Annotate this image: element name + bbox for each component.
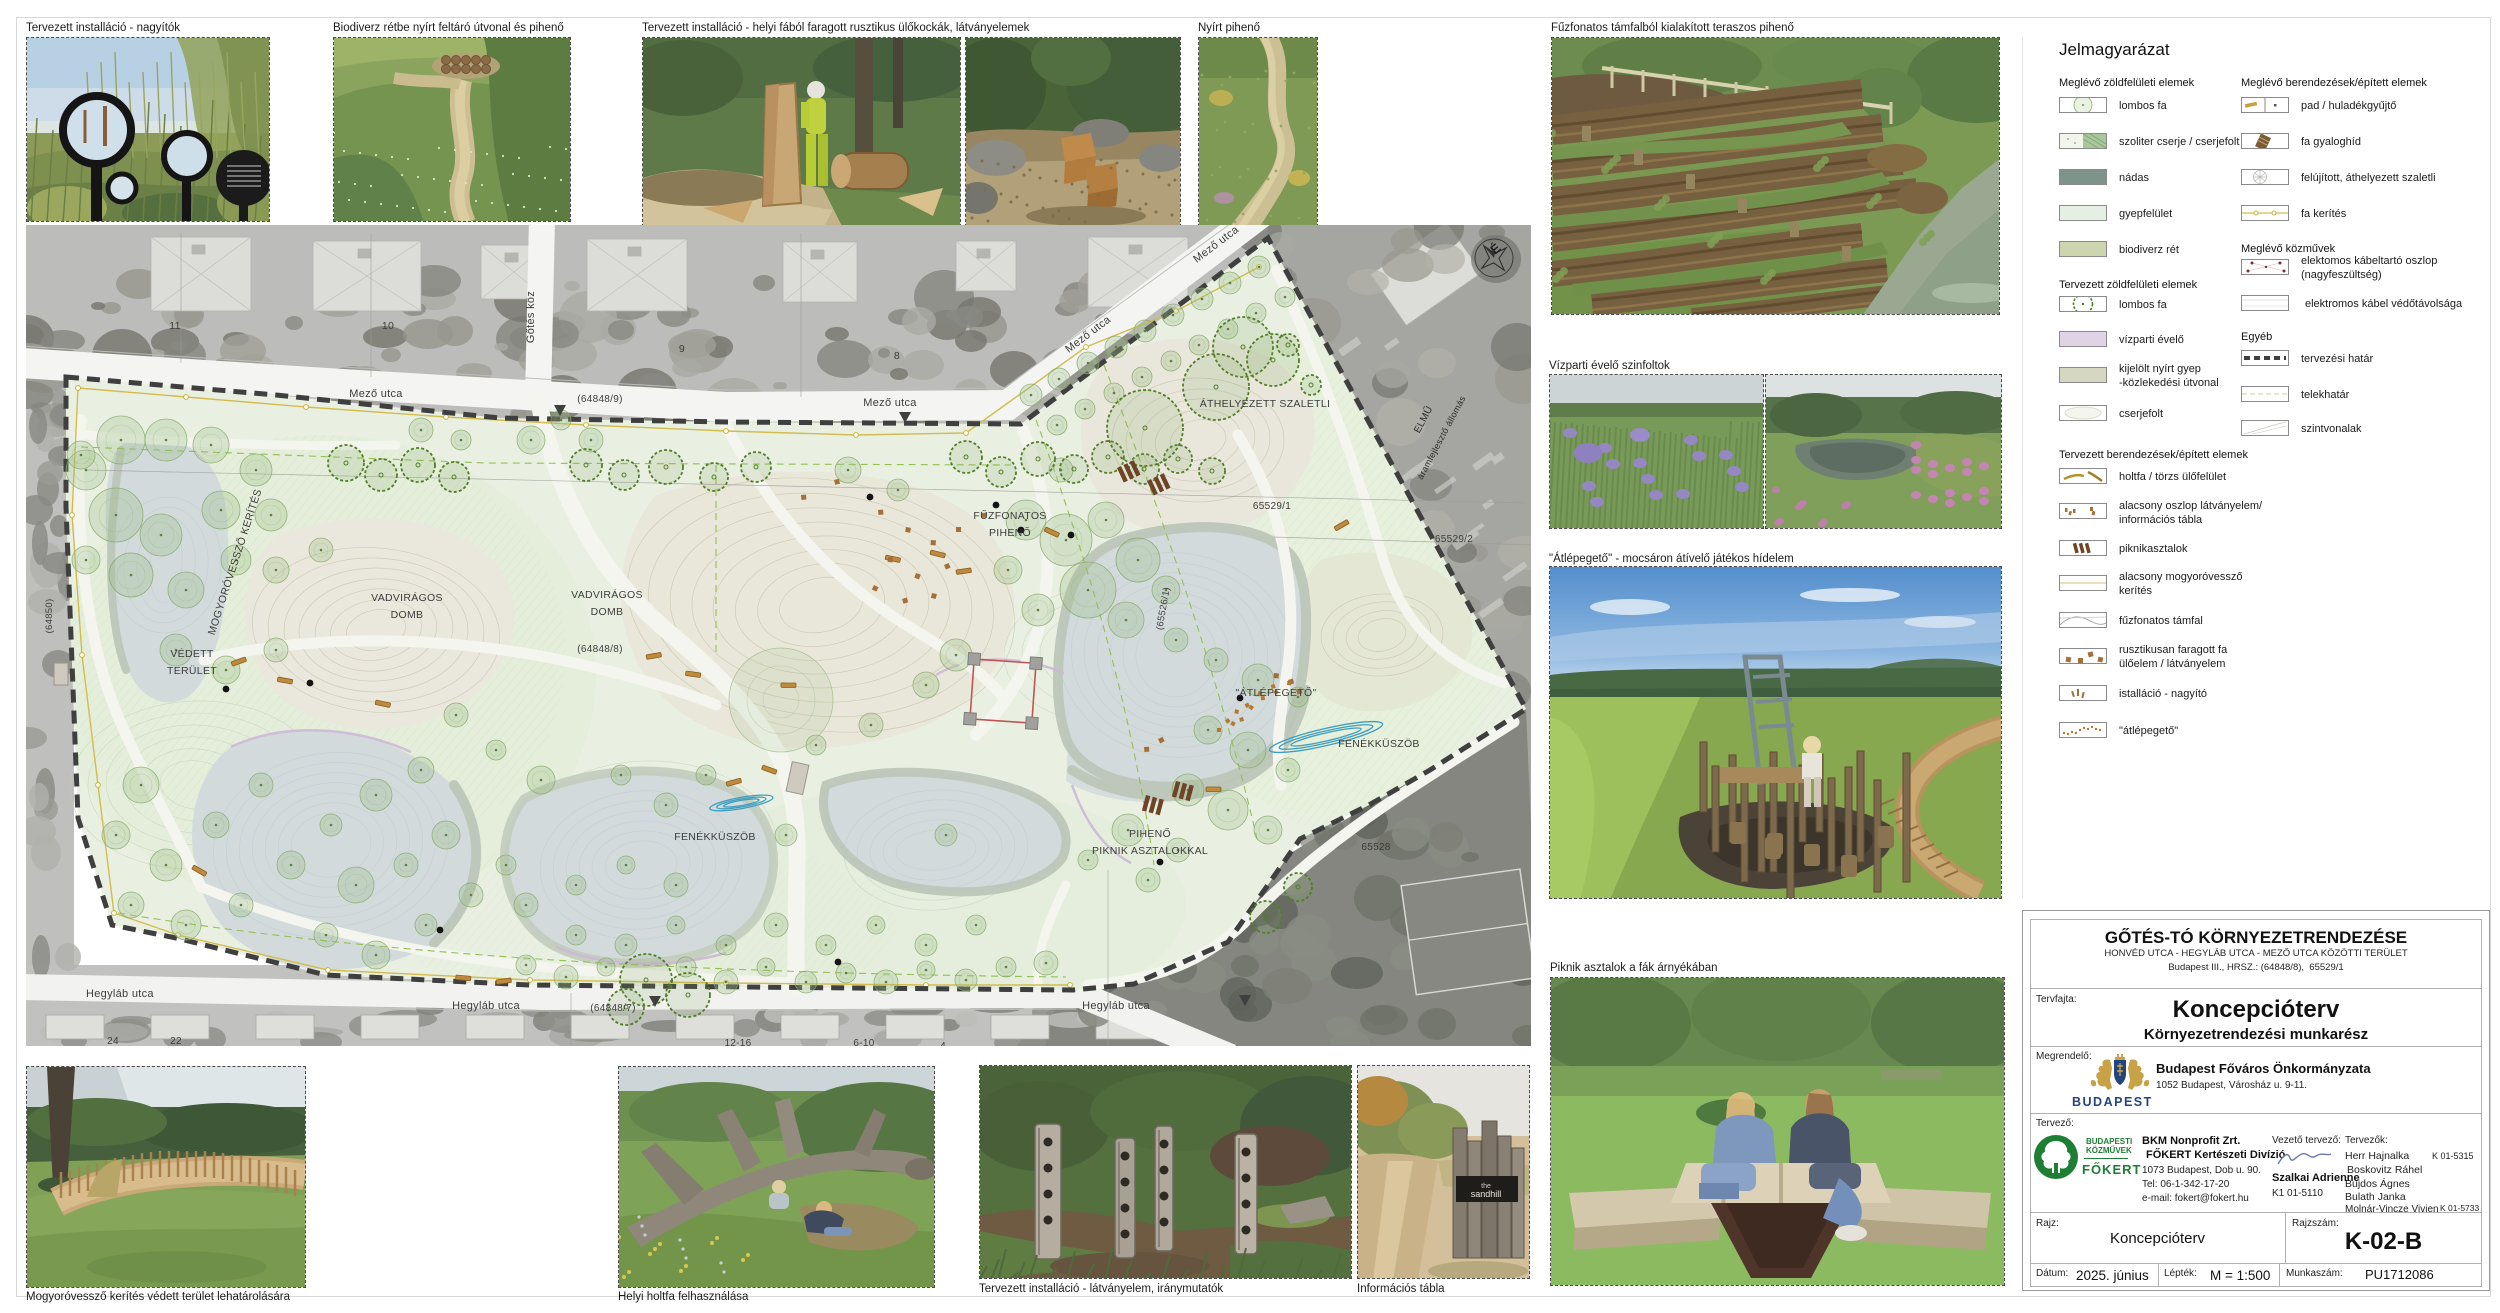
svg-text:Hegyláb utca: Hegyláb utca [452, 1000, 520, 1012]
svg-text:11: 11 [169, 320, 181, 332]
svg-text:(64848/8): (64848/8) [577, 644, 623, 655]
svg-text:"ÁTLÉPEGETŐ": "ÁTLÉPEGETŐ" [1235, 685, 1316, 699]
svg-text:8: 8 [894, 350, 900, 362]
svg-text:6-10: 6-10 [853, 1038, 874, 1046]
svg-text:PIKNIK ASZTALOKKAL: PIKNIK ASZTALOKKAL [1092, 845, 1208, 857]
svg-text:PIHENŐ: PIHENŐ [989, 525, 1031, 539]
svg-text:4: 4 [940, 1041, 946, 1046]
svg-text:24: 24 [107, 1036, 119, 1046]
svg-text:VADVIRÁGOS: VADVIRÁGOS [371, 591, 443, 604]
svg-text:(64848/9): (64848/9) [577, 394, 623, 405]
svg-text:65529/1: 65529/1 [1253, 501, 1291, 512]
svg-text:PIHENŐ: PIHENŐ [1129, 826, 1171, 840]
svg-text:9: 9 [679, 343, 685, 355]
svg-text:65528: 65528 [1361, 842, 1390, 853]
svg-text:Hegyláb utca: Hegyláb utca [86, 988, 154, 1000]
svg-text:10: 10 [382, 320, 394, 332]
svg-text:TERÜLET: TERÜLET [167, 665, 217, 677]
svg-text:DOMB: DOMB [591, 606, 624, 618]
svg-text:(64848/7): (64848/7) [590, 1003, 636, 1014]
svg-text:(64850): (64850) [44, 599, 55, 634]
svg-text:Mező utca: Mező utca [863, 397, 917, 409]
svg-text:ÁTHELYEZETT SZALETLI: ÁTHELYEZETT SZALETLI [1200, 397, 1330, 410]
svg-text:VÉDETT: VÉDETT [170, 647, 214, 660]
svg-text:FENÉKKÜSZÖB: FENÉKKÜSZÖB [1338, 737, 1419, 750]
svg-text:VADVIRÁGOS: VADVIRÁGOS [571, 588, 643, 601]
svg-text:12-16: 12-16 [724, 1038, 751, 1046]
svg-text:Hegyláb utca: Hegyláb utca [1082, 1000, 1150, 1012]
svg-text:Mező utca: Mező utca [349, 388, 403, 400]
svg-text:DOMB: DOMB [391, 609, 424, 621]
svg-text:FENÉKKÜSZÖB: FENÉKKÜSZÖB [674, 830, 755, 843]
svg-text:Gőtés köz: Gőtés köz [525, 291, 537, 343]
svg-text:FŰZFONATOS: FŰZFONATOS [973, 508, 1046, 522]
svg-text:sandhill: sandhill [1471, 1189, 1502, 1199]
svg-text:65529/2: 65529/2 [1435, 534, 1473, 545]
svg-text:22: 22 [170, 1036, 182, 1046]
